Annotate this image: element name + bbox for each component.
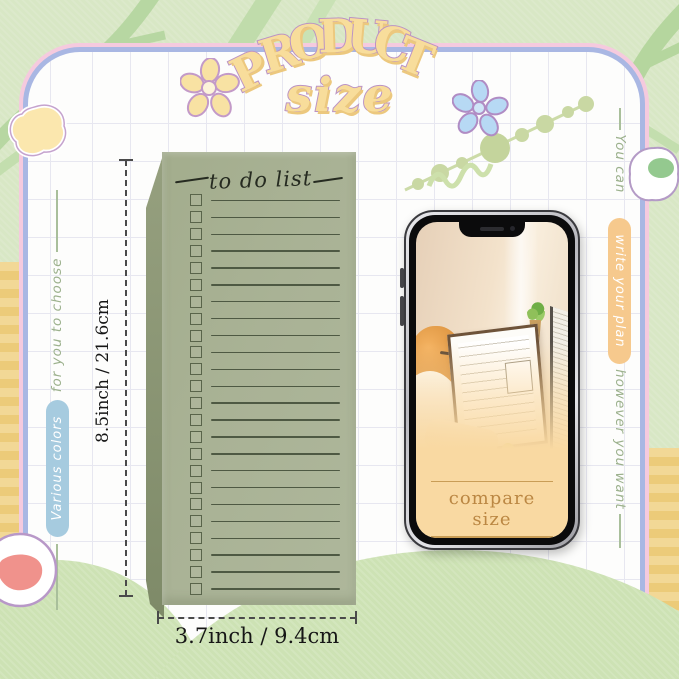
- todo-line: [211, 453, 340, 454]
- todo-checkbox: [190, 296, 202, 308]
- todo-checkbox: [190, 482, 202, 494]
- todo-line: [211, 217, 340, 218]
- todo-line: [211, 538, 340, 539]
- todo-row: [162, 412, 356, 429]
- todo-row: [162, 580, 356, 597]
- todo-checkbox: [190, 262, 202, 274]
- todo-checkbox: [190, 515, 202, 527]
- cloud-blob-decoration-left: [8, 102, 70, 164]
- side-note-right-line-top: [619, 108, 621, 130]
- todo-line: [211, 250, 340, 251]
- yellow-flower-icon: [180, 58, 240, 120]
- side-note-right-text-before: You can: [612, 134, 628, 193]
- todo-checkbox: [190, 583, 202, 595]
- todo-checkbox: [190, 465, 202, 477]
- side-note-right-text-after: however you want: [612, 369, 628, 510]
- todo-line: [211, 436, 340, 437]
- width-dimension-label: 3.7inch / 9.4cm: [157, 624, 357, 648]
- todo-line: [211, 267, 340, 268]
- compare-line-top: [431, 481, 553, 483]
- todo-row: [162, 276, 356, 293]
- todo-row: [162, 293, 356, 310]
- phone-bezel: compare size: [409, 215, 575, 545]
- height-dimension-label: 8.5inch / 21.6cm: [93, 313, 113, 443]
- height-dimension-line: [125, 160, 127, 596]
- write-your-plan-pill: write your plan: [609, 218, 632, 363]
- todo-checkbox: [190, 228, 202, 240]
- todo-checkbox: [190, 380, 202, 392]
- todo-row: [162, 496, 356, 513]
- todo-row: [162, 209, 356, 226]
- todo-checkbox: [190, 211, 202, 223]
- todo-checkbox: [190, 330, 202, 342]
- todo-checkbox: [190, 363, 202, 375]
- todo-line: [211, 504, 340, 505]
- width-dimension-cap-left: [157, 611, 159, 624]
- todo-checkbox: [190, 313, 202, 325]
- product-size-infographic: PRODUCT size: [0, 0, 679, 679]
- height-dimension-cap-top: [119, 159, 133, 161]
- various-colors-pill: Various colors: [46, 400, 69, 537]
- todo-row: [162, 445, 356, 462]
- todo-line: [211, 402, 340, 403]
- todo-checkbox: [190, 245, 202, 257]
- todo-checkbox: [190, 414, 202, 426]
- todo-line: [211, 200, 340, 201]
- phone-speaker: [480, 227, 504, 231]
- title-swash-left: [175, 177, 209, 184]
- todo-line: [211, 284, 340, 285]
- width-dimension-cap-right: [355, 611, 357, 624]
- todo-row: [162, 564, 356, 581]
- todo-row: [162, 310, 356, 327]
- todo-line: [211, 554, 340, 555]
- height-dimension-cap-bottom: [119, 595, 133, 597]
- width-dimension-line: [158, 617, 356, 619]
- todo-checkbox: [190, 549, 202, 561]
- title-swash-right: [313, 177, 343, 183]
- phone-screen: compare size: [416, 222, 568, 538]
- phone-camera: [510, 226, 515, 231]
- notepad-rows: [162, 192, 356, 597]
- compare-line-bottom: [431, 536, 553, 538]
- todo-line: [211, 335, 340, 336]
- todo-checkbox: [190, 566, 202, 578]
- todo-line: [211, 301, 340, 302]
- side-note-left-line-top: [56, 190, 58, 252]
- compare-size-block: compare size: [431, 475, 553, 538]
- phone-notch: [459, 222, 525, 237]
- todo-row: [162, 530, 356, 547]
- todo-row: [162, 395, 356, 412]
- todo-checkbox: [190, 279, 202, 291]
- todo-row: [162, 344, 356, 361]
- todo-checkbox: [190, 431, 202, 443]
- side-note-right-line-bottom: [619, 514, 621, 548]
- todo-line: [211, 571, 340, 572]
- todo-line: [211, 318, 340, 319]
- size-subtitle: size: [250, 68, 430, 123]
- todo-checkbox: [190, 194, 202, 206]
- todo-row: [162, 547, 356, 564]
- todo-line: [211, 234, 340, 235]
- todo-row: [162, 192, 356, 209]
- todo-notepad: to do list: [162, 152, 356, 605]
- todo-line: [211, 470, 340, 471]
- todo-row: [162, 479, 356, 496]
- todo-checkbox: [190, 498, 202, 510]
- todo-row: [162, 260, 356, 277]
- todo-line: [211, 588, 340, 589]
- todo-line: [211, 369, 340, 370]
- blue-flower-icon: [452, 80, 510, 138]
- todo-row: [162, 361, 356, 378]
- todo-row: [162, 462, 356, 479]
- egg-blob-decoration-right: [628, 146, 679, 206]
- todo-line: [211, 521, 340, 522]
- todo-row: [162, 378, 356, 395]
- smartphone: compare size: [404, 210, 580, 550]
- todo-row: [162, 513, 356, 530]
- todo-checkbox: [190, 448, 202, 460]
- side-note-left-text: for you to choose: [49, 258, 65, 393]
- pink-blob-decoration-left: [0, 530, 60, 610]
- todo-row: [162, 428, 356, 445]
- todo-row: [162, 327, 356, 344]
- todo-line: [211, 487, 340, 488]
- todo-checkbox: [190, 397, 202, 409]
- todo-line: [211, 419, 340, 420]
- compare-size-caption: compare size: [431, 488, 553, 530]
- notepad-title: to do list: [209, 166, 313, 194]
- todo-row: [162, 243, 356, 260]
- todo-checkbox: [190, 346, 202, 358]
- todo-checkbox: [190, 532, 202, 544]
- todo-row: [162, 226, 356, 243]
- squiggle-decoration: [425, 158, 495, 198]
- todo-line: [211, 386, 340, 387]
- todo-line: [211, 352, 340, 353]
